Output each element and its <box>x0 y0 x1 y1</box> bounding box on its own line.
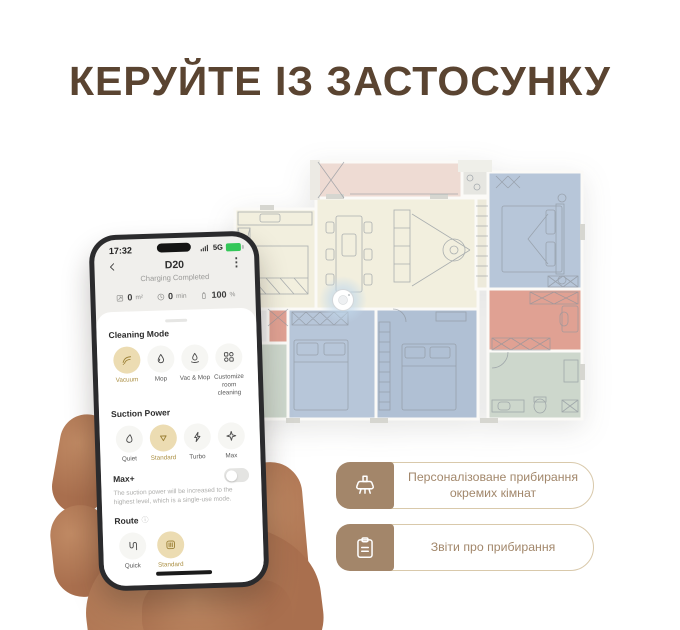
stat-battery-unit: % <box>229 291 235 298</box>
stat-time-unit: min <box>176 292 187 299</box>
route-standard[interactable]: Standard <box>153 531 188 570</box>
mode-vac-mop[interactable]: Vac & Mop <box>177 344 213 399</box>
suction-power-options: Quiet Standard Turbo Max <box>111 421 248 463</box>
power-quiet[interactable]: Quiet <box>111 425 146 464</box>
stats-row: 0 m² 0 min 100 % <box>95 289 255 304</box>
network-label: 5G <box>213 243 223 252</box>
feature-personalized-cleaning: Персоналізоване прибирання окремих кімна… <box>336 462 594 509</box>
feature-label: Персоналізоване прибирання окремих кімна… <box>362 462 594 509</box>
max-plus-toggle[interactable] <box>224 468 249 483</box>
suction-power-label: Suction Power <box>111 404 247 418</box>
report-icon <box>336 524 394 571</box>
power-max[interactable]: Max <box>213 421 248 460</box>
signal-icon <box>199 242 210 253</box>
mode-vacuum[interactable]: Vacuum <box>109 346 145 401</box>
camera-notch <box>157 243 191 253</box>
route-options: Quick Standard <box>115 529 252 571</box>
back-icon[interactable] <box>106 261 118 273</box>
info-icon[interactable]: ⓘ <box>141 515 148 525</box>
cleaning-mode-options: Vacuum Mop Vac & Mop Customize room clea… <box>109 343 247 401</box>
mode-customize[interactable]: Customize room cleaning <box>211 343 247 398</box>
controls-card: Cleaning Mode Vacuum Mop Vac & Mop <box>96 308 265 587</box>
quiet-icon <box>122 432 135 445</box>
route-quick[interactable]: Quick <box>115 532 150 571</box>
page-title: КЕРУЙТЕ ІЗ ЗАСТОСУНКУ <box>0 58 680 105</box>
home-indicator[interactable] <box>156 570 212 576</box>
app-header: D20 Charging Completed ⋮ <box>94 252 255 285</box>
status-time: 17:32 <box>109 245 132 256</box>
phone: 17:32 5G D20 Charging Completed ⋮ 0 <box>88 230 269 591</box>
area-icon <box>115 293 124 302</box>
feature-label: Звіти про прибирання <box>362 524 594 571</box>
brush-icon <box>336 462 394 509</box>
stat-battery-value: 100 <box>211 289 226 299</box>
max-plus-label: Max+ <box>113 474 135 485</box>
clock-icon <box>156 292 165 301</box>
stat-area-value: 0 <box>127 292 132 302</box>
page: КЕРУЙТЕ ІЗ ЗАСТОСУНКУ <box>0 0 680 630</box>
phone-screen: 17:32 5G D20 Charging Completed ⋮ 0 <box>94 236 265 587</box>
map-rooms <box>232 162 582 419</box>
cleaning-mode-label: Cleaning Mode <box>108 326 244 340</box>
stat-area: 0 m² <box>115 292 143 303</box>
vac-mop-icon <box>188 351 201 364</box>
max-plus-description: The suction power will be increased to t… <box>113 486 249 508</box>
floor-plan-map <box>230 154 586 426</box>
stat-time: 0 min <box>156 291 187 302</box>
stat-area-unit: m² <box>135 294 143 301</box>
power-standard[interactable]: Standard <box>145 424 180 463</box>
device-name: D20 <box>118 257 230 273</box>
turbo-icon <box>190 430 203 443</box>
vacuum-icon <box>120 353 133 366</box>
stat-time-value: 0 <box>168 291 173 301</box>
battery-vertical-icon <box>199 291 208 300</box>
battery-icon <box>226 242 241 250</box>
max-icon <box>224 429 237 442</box>
drag-handle[interactable] <box>165 319 187 323</box>
standard-power-icon <box>156 431 169 444</box>
feature-badges: Персоналізоване прибирання окремих кімна… <box>336 462 594 586</box>
power-turbo[interactable]: Turbo <box>179 423 214 462</box>
device-status: Charging Completed <box>119 271 231 284</box>
feature-cleaning-reports: Звіти про прибирання <box>336 524 594 571</box>
stat-battery: 100 % <box>199 289 235 300</box>
more-menu-icon[interactable]: ⋮ <box>230 257 242 267</box>
mode-mop[interactable]: Mop <box>143 345 179 400</box>
mop-icon <box>154 352 167 365</box>
quick-route-icon <box>126 540 139 553</box>
standard-route-icon <box>164 539 177 552</box>
route-label: Route <box>114 516 138 527</box>
customize-rooms-icon <box>222 350 235 363</box>
robot-vacuum-marker <box>319 276 367 324</box>
